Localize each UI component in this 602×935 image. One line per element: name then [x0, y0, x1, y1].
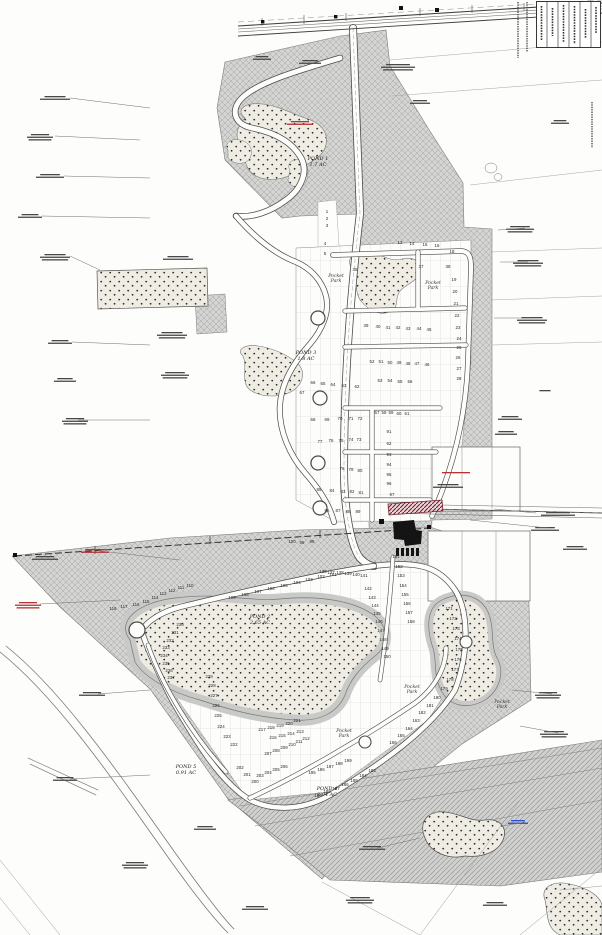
lot-number: 16 [435, 243, 440, 248]
lot-number: 115 [143, 599, 151, 604]
lot-number: 199 [344, 758, 352, 763]
lot-number: 189 [314, 793, 322, 798]
lot-number: 50 [388, 360, 393, 365]
lot-number: 220 [285, 721, 293, 726]
lot-number: 21 [454, 301, 459, 306]
lot-number: 97 [390, 492, 395, 497]
lot-number: 43 [406, 326, 411, 331]
annotation-note [62, 418, 88, 425]
lot-number: 184 [359, 773, 367, 778]
lot-number: 219 [276, 723, 284, 728]
lot-number: 172 [449, 616, 457, 621]
lot-number: 19 [452, 277, 457, 282]
lot-number: 222 [230, 742, 238, 747]
lot-number: 56 [408, 379, 413, 384]
lot-number: 233 [162, 645, 170, 650]
site-plan-drawing: POND 11.7 ACPOND 31.8 ACPOND 22.65 ACPON… [0, 0, 602, 935]
lot-number: 148 [379, 637, 387, 642]
lot-number: 163 [412, 718, 420, 723]
lot-number: 67 [300, 390, 305, 395]
pond-label-pond3: POND 31.8 AC [295, 350, 317, 362]
lot-number: 116 [133, 602, 141, 607]
lot-number: 39 [364, 323, 369, 328]
lot-number: 221 [293, 718, 301, 723]
lot-number: 47 [415, 361, 420, 366]
lot-number: 76 [329, 438, 334, 443]
annotation-note [535, 692, 561, 699]
lot-number: 214 [287, 731, 295, 736]
lot-number: 109 [228, 595, 236, 600]
lot-number: 166 [389, 740, 397, 745]
lot-number: 35 [353, 267, 358, 272]
lot-number: 78 [340, 466, 345, 471]
lot-number: 70 [338, 416, 343, 421]
lot-number: 202 [236, 765, 244, 770]
lot-number: 229 [205, 674, 213, 679]
lot-number: 87 [336, 508, 341, 513]
lot-number: 144 [371, 603, 379, 608]
lot-number: 171 [445, 606, 453, 611]
lot-number: 103 [305, 577, 313, 582]
lot-number: 92 [387, 441, 392, 446]
lot-number: 156 [403, 601, 411, 606]
annotation-note [161, 372, 189, 379]
lot-number: 196 [317, 767, 325, 772]
lot-number: 84 [330, 488, 335, 493]
lot-number: 136 [319, 569, 327, 574]
lot-number: 178 [446, 677, 454, 682]
lot-number: 95 [387, 472, 392, 477]
lot-number: 142 [364, 586, 372, 591]
lot-number: 143 [368, 595, 376, 600]
lot-number: 86 [325, 508, 330, 513]
lot-number: 40 [376, 324, 381, 329]
lot-number: 197 [326, 764, 334, 769]
lot-number: 212 [302, 736, 310, 741]
lot-number: 25 [457, 345, 462, 350]
lot-number: 72 [358, 416, 363, 421]
lot-number: 226 [212, 703, 220, 708]
lot-number: 82 [350, 489, 355, 494]
lot-number: 28 [457, 376, 462, 381]
lot-number: 149 [381, 646, 389, 651]
lot-number: 93 [387, 452, 392, 457]
annotation-note [513, 260, 543, 267]
lot-number: 54 [388, 378, 393, 383]
lot-number: 236 [165, 668, 173, 673]
lot-number: 68 [311, 417, 316, 422]
pond-label-pond2: POND 22.65 AC [249, 614, 271, 626]
pond-label-pond5: POND 50.91 AC [175, 764, 197, 776]
lot-number: 55 [398, 379, 403, 384]
lot-number: 140 [352, 572, 360, 577]
lot-number: 139 [344, 571, 352, 576]
lot-number: 138 [336, 570, 344, 575]
lot-number: 235 [162, 661, 170, 666]
lot-number: 195 [308, 770, 316, 775]
lot-number: 88 [346, 509, 351, 514]
lot-number: 137 [327, 570, 335, 575]
lot-number: 141 [360, 573, 368, 578]
lot-number: 179 [440, 686, 448, 691]
lot-number: 104 [293, 580, 301, 585]
lot-number: 187 [332, 786, 340, 791]
lot-number: 173 [452, 626, 460, 631]
lot-number: 99 [300, 540, 305, 545]
lot-number: 224 [217, 724, 225, 729]
lot-number: 51 [379, 359, 384, 364]
lot-number: 230 [176, 622, 184, 627]
lot-number: 89 [356, 509, 361, 514]
lot-number: 91 [387, 429, 392, 434]
lot-number: 108 [241, 592, 249, 597]
lot-number: 209 [280, 745, 288, 750]
lot-number: 147 [377, 628, 385, 633]
reserved-corridor-strip [97, 268, 208, 309]
lot-number: 26 [456, 355, 461, 360]
lot-number: 37 [419, 264, 424, 269]
lot-number: 145 [373, 611, 381, 616]
lot-number: 13 [398, 240, 403, 245]
lot-number: 228 [208, 683, 216, 688]
lot-number: 45 [427, 327, 432, 332]
lot-number: 94 [387, 462, 392, 467]
lot-number: 15 [423, 242, 428, 247]
lot-number: 185 [350, 778, 358, 783]
lot-number: 81 [359, 490, 364, 495]
lot-number: 200 [251, 779, 259, 784]
lot-number: 113 [160, 591, 168, 596]
lot-number: 146 [375, 619, 383, 624]
lot-number: 234 [160, 653, 168, 658]
lot-number: 175 [455, 647, 463, 652]
lot-number: 20 [453, 289, 458, 294]
lot-number: 152 [395, 564, 403, 569]
lot-number: 231 [171, 630, 179, 635]
lot-number: 176 [454, 657, 462, 662]
lot-number: 106 [267, 586, 275, 591]
lot-number: 206 [280, 764, 288, 769]
lot-number: 46 [425, 362, 430, 367]
annotation-note [40, 254, 70, 261]
lot-number: 232 [166, 638, 174, 643]
lot-number: 18 [450, 249, 455, 254]
lot-number: 213 [296, 729, 304, 734]
lot-number: 65 [321, 381, 326, 386]
lot-number: 107 [254, 589, 262, 594]
lot-number: 118 [110, 606, 118, 611]
lot-number: 182 [418, 710, 426, 715]
lot-number: 165 [397, 733, 405, 738]
lot-number: 207 [264, 751, 272, 756]
lot-number: 183 [368, 768, 376, 773]
annotation-note [27, 134, 53, 141]
lot-number: 198 [335, 761, 343, 766]
lot-number: 218 [267, 725, 275, 730]
lot-number: 80 [358, 468, 363, 473]
lot-number: 237 [167, 675, 175, 680]
lot-number: 66 [311, 380, 316, 385]
lot-number: 100 [288, 539, 296, 544]
lot-number: 204 [264, 770, 272, 775]
lot-number: 188 [323, 789, 331, 794]
lot-number: 63 [342, 383, 347, 388]
lot-number: 58 [382, 410, 387, 415]
lot-number: 52 [370, 359, 375, 364]
lot-number: 208 [272, 748, 280, 753]
lot-number: 69 [325, 417, 330, 422]
lot-number: 225 [214, 713, 222, 718]
lot-number: 49 [397, 360, 402, 365]
lot-number: 23 [456, 325, 461, 330]
annotation-note [346, 897, 374, 904]
lot-number: 205 [272, 767, 280, 772]
lot-number: 215 [278, 733, 286, 738]
annotation-note [381, 64, 415, 71]
lot-number: 38 [446, 264, 451, 269]
lot-number: 73 [357, 437, 362, 442]
lot-number: 227 [210, 693, 218, 698]
lot-number: 117 [121, 604, 129, 609]
lot-number: 14 [410, 241, 415, 246]
annotation-note [122, 862, 148, 869]
lot-number: 41 [386, 325, 391, 330]
annotation-note [539, 390, 550, 391]
lot-number: 57 [375, 410, 380, 415]
annotation-note [157, 332, 187, 339]
lot-number: 217 [258, 727, 266, 732]
lot-number: 71 [349, 416, 354, 421]
lot-number: 153 [397, 573, 405, 578]
lot-number: 177 [451, 667, 459, 672]
lot-number: 27 [457, 366, 462, 371]
lot-number: 174 [454, 636, 462, 641]
lot-number: 59 [389, 410, 394, 415]
lot-number: 75 [339, 438, 344, 443]
lot-number: 77 [318, 439, 323, 444]
lot-number: 62 [355, 384, 360, 389]
lot-number: 111 [178, 585, 185, 590]
lot-number: 203 [256, 773, 264, 778]
lot-number: 102 [317, 574, 325, 579]
lot-number: 201 [243, 772, 251, 777]
lot-number: 24 [457, 336, 462, 341]
lot-number: 60 [397, 411, 402, 416]
lot-number: 155 [401, 592, 409, 597]
lot-number: 22 [455, 313, 460, 318]
lot-number: 61 [405, 411, 410, 416]
lot-number: 164 [405, 726, 413, 731]
lot-number: 42 [396, 325, 401, 330]
lot-number: 83 [341, 489, 346, 494]
lot-number: 74 [349, 437, 354, 442]
lot-number: 110 [187, 583, 195, 588]
lot-number: 158 [407, 619, 415, 624]
lot-number: 223 [223, 734, 231, 739]
lot-number: 150 [383, 654, 391, 659]
lot-number: 53 [378, 378, 383, 383]
lot-number: 180 [433, 695, 441, 700]
lot-number: 85 [317, 487, 322, 492]
lot-number: 98 [310, 539, 315, 544]
lot-number: 96 [387, 481, 392, 486]
annotation-note [15, 602, 41, 609]
lot-number: 79 [349, 467, 354, 472]
lot-number: 157 [405, 610, 413, 615]
lot-number: 44 [417, 326, 422, 331]
lot-number: 186 [341, 782, 349, 787]
lot-number: 181 [426, 703, 434, 708]
lot-number: 64 [331, 382, 336, 387]
lot-number: 216 [269, 735, 277, 740]
lot-number: 48 [406, 361, 411, 366]
lot-number: 151 [392, 554, 400, 559]
lot-number: 154 [399, 583, 407, 588]
lot-number: 112 [169, 588, 177, 593]
annotation-note [540, 731, 568, 738]
lot-number: 114 [152, 595, 160, 600]
annotation-note [442, 472, 470, 473]
pond-label-pond1: POND 11.7 AC [307, 156, 329, 168]
lot-number: 105 [280, 583, 288, 588]
